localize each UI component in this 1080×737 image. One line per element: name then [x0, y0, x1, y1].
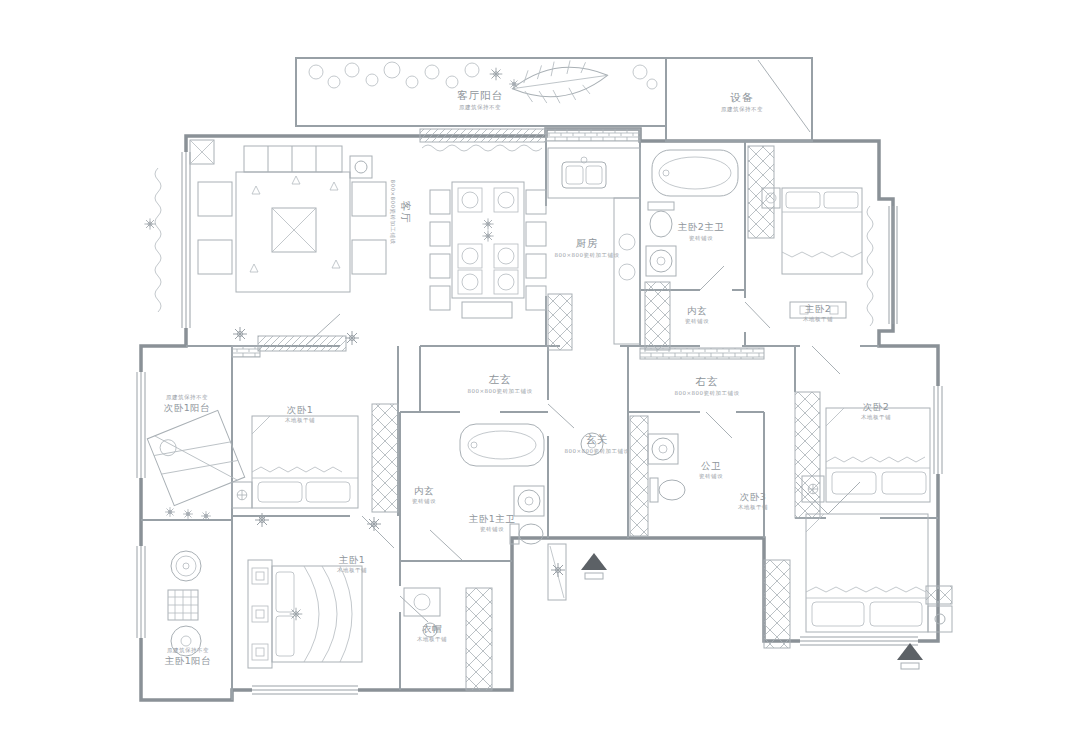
bed-bedroom1: [252, 416, 358, 508]
armchair: [198, 240, 232, 274]
window-wing-lower: [135, 546, 147, 638]
bedroom3-furniture: [806, 514, 928, 632]
plant-icon: [551, 563, 565, 577]
label-right-hall: 右玄: [696, 375, 719, 387]
cooktop-burner: [619, 264, 635, 280]
floor-plan-canvas: 客厅阳台 原建筑保持不变 设备 原建筑保持不变 客厅 800×800瓷砖加工铺设…: [0, 0, 1080, 737]
wardrobe-cloakroom: [466, 588, 492, 690]
master2-furniture: [762, 188, 862, 318]
note-entry-hall: 800×800瓷砖加工铺设: [564, 448, 629, 455]
fridge-kitchen: [548, 294, 572, 350]
label-master2-bath: 主卧2主卫: [678, 221, 725, 232]
toilet: [510, 524, 543, 544]
tv-wall-band: [258, 336, 346, 351]
plant-icon: [201, 511, 211, 521]
label-equipment: 设备: [730, 91, 754, 103]
dresser: [404, 588, 440, 616]
bed-master1: [272, 566, 362, 662]
label-kitchen: 厨房: [576, 237, 599, 249]
cooktop-burner: [619, 234, 635, 250]
bed-bedroom3: [806, 514, 928, 632]
wardrobe-inner-hall-right: [645, 282, 670, 350]
drain-grid: [168, 590, 198, 620]
label-bedroom1: 次卧1: [287, 404, 314, 415]
dining-chairs: [430, 190, 546, 318]
round-washer-icon: [171, 551, 201, 581]
label-bedroom2: 次卧2: [863, 401, 890, 412]
toilet: [650, 478, 685, 502]
label-left-hall: 左玄: [489, 373, 512, 385]
label-cloakroom: 衣帽: [422, 623, 442, 634]
table-lamp-icon: [237, 490, 247, 500]
wardrobe-master2: [748, 146, 774, 238]
curtain-wave-left: [155, 168, 161, 312]
label-living-balcony: 客厅阳台: [457, 89, 503, 101]
plant-icon: [144, 218, 155, 229]
plant-icon: [367, 517, 381, 531]
plant-icon: [255, 513, 269, 527]
window-master1-bottom: [252, 684, 358, 696]
brick-band-spine-left: [232, 346, 260, 357]
armchair: [198, 182, 232, 216]
bathtub: [460, 424, 544, 466]
bedroom1-furniture: [232, 416, 358, 508]
plant-icon: [482, 230, 493, 241]
label-bedroom3: 次卧3: [740, 491, 767, 502]
cabinet-bedroom3-corner: [926, 586, 952, 604]
bed-master2: [782, 188, 862, 274]
label-master2: 主卧2: [805, 303, 832, 314]
note-bedroom3: 木地板干铺: [738, 504, 768, 510]
window-master2-bay: [889, 206, 897, 324]
note-living: 800×800瓷砖加工铺设: [389, 179, 396, 244]
note-bedroom2: 木地板干铺: [861, 414, 891, 420]
note-left-hall: 800×800瓷砖加工铺设: [467, 388, 532, 395]
note-public-bath: 瓷砖铺设: [699, 473, 723, 480]
label-master1: 主卧1: [339, 554, 366, 565]
label-master1-bath: 主卧1主卫: [469, 513, 516, 524]
window-left-living: [180, 152, 192, 328]
label-entry-hall: 玄关: [586, 433, 609, 445]
armchair: [352, 240, 386, 274]
note-kitchen: 800×800瓷砖加工铺设: [554, 252, 619, 259]
master2-bath-fixtures: [646, 150, 738, 276]
window-bedroom3-bottom: [800, 635, 918, 647]
public-bath-fixtures: [648, 434, 685, 502]
living-room-furniture: [190, 140, 386, 292]
balcony-planting: [309, 55, 657, 110]
plant-icon: [290, 608, 303, 621]
note-living-balcony: 原建筑保持不变: [459, 104, 501, 111]
lounge-chair: [147, 410, 244, 505]
label-bedroom1-balcony: 次卧1阳台: [164, 402, 211, 413]
label-inner-hall-left: 内玄: [414, 485, 434, 496]
hatch-band-balcony-door: [420, 129, 546, 142]
plant-icon: [165, 507, 175, 517]
plant-icon: [482, 218, 493, 229]
shoe-cabinet-entry: [630, 416, 648, 536]
entry-fixtures: [548, 433, 607, 600]
entry-arrow-icon: [581, 553, 607, 579]
wardrobe-bedroom2: [795, 392, 820, 518]
dining-set: [430, 182, 546, 318]
note-bedroom1-balcony: 原建筑保持不变: [166, 394, 208, 401]
toilet: [648, 202, 674, 237]
note-inner-hall-right: 瓷砖铺设: [685, 318, 709, 325]
plant-icon: [345, 331, 359, 345]
note-master2: 木地板干铺: [803, 316, 833, 322]
label-public-bath: 公卫: [701, 460, 721, 471]
master1-furniture: [248, 560, 362, 668]
fishbone-plant: [510, 55, 611, 110]
note-master1: 木地板干铺: [337, 567, 367, 573]
curtain-wave-master2: [867, 206, 873, 326]
label-master1-balcony: 主卧1阳台: [165, 655, 212, 666]
brick-band-kitchen-top: [546, 129, 640, 141]
floor-plan-drawing: 客厅阳台 原建筑保持不变 设备 原建筑保持不变 客厅 800×800瓷砖加工铺设…: [0, 0, 1080, 737]
window-bedroom2-bay: [932, 386, 944, 474]
bed-bedroom2: [826, 408, 930, 502]
note-master1-bath: 瓷砖铺设: [480, 526, 504, 533]
armchair: [352, 182, 386, 216]
plant-icon: [233, 327, 247, 341]
note-master2-bath: 瓷砖铺设: [689, 235, 713, 242]
kitchen-side-counter: [614, 198, 640, 344]
sofa: [244, 146, 342, 172]
coffee-table: [272, 208, 316, 252]
sink: [514, 486, 544, 516]
kitchen-sink: [562, 157, 606, 188]
note-inner-hall-left: 瓷砖铺设: [412, 498, 436, 505]
equipment-door-leaf: [758, 60, 810, 132]
label-inner-hall-right: 内玄: [687, 305, 707, 316]
curtain-wave-top: [422, 145, 542, 151]
sink: [648, 434, 678, 464]
plant-icon: [183, 509, 193, 519]
table-lamp-icon: [808, 484, 818, 494]
label-living: 客厅: [400, 201, 412, 224]
note-right-hall: 800×800瓷砖加工铺设: [674, 390, 739, 397]
bedroom2-furniture: [802, 408, 930, 502]
nightstand-bedroom3: [928, 606, 952, 632]
window-wing-upper: [135, 372, 147, 478]
sink: [646, 246, 676, 276]
note-equipment: 原建筑保持不变: [721, 106, 763, 113]
side-table-lamp: [350, 156, 372, 178]
wardrobe-bedroom3: [764, 560, 790, 648]
note-bedroom1: 木地板干铺: [285, 417, 315, 423]
wing-items: [147, 410, 244, 656]
note-master1-balcony: 原建筑保持不变: [167, 647, 209, 654]
wardrobe-bedroom1: [372, 404, 398, 512]
note-cloakroom: 木地板干铺: [417, 636, 447, 642]
